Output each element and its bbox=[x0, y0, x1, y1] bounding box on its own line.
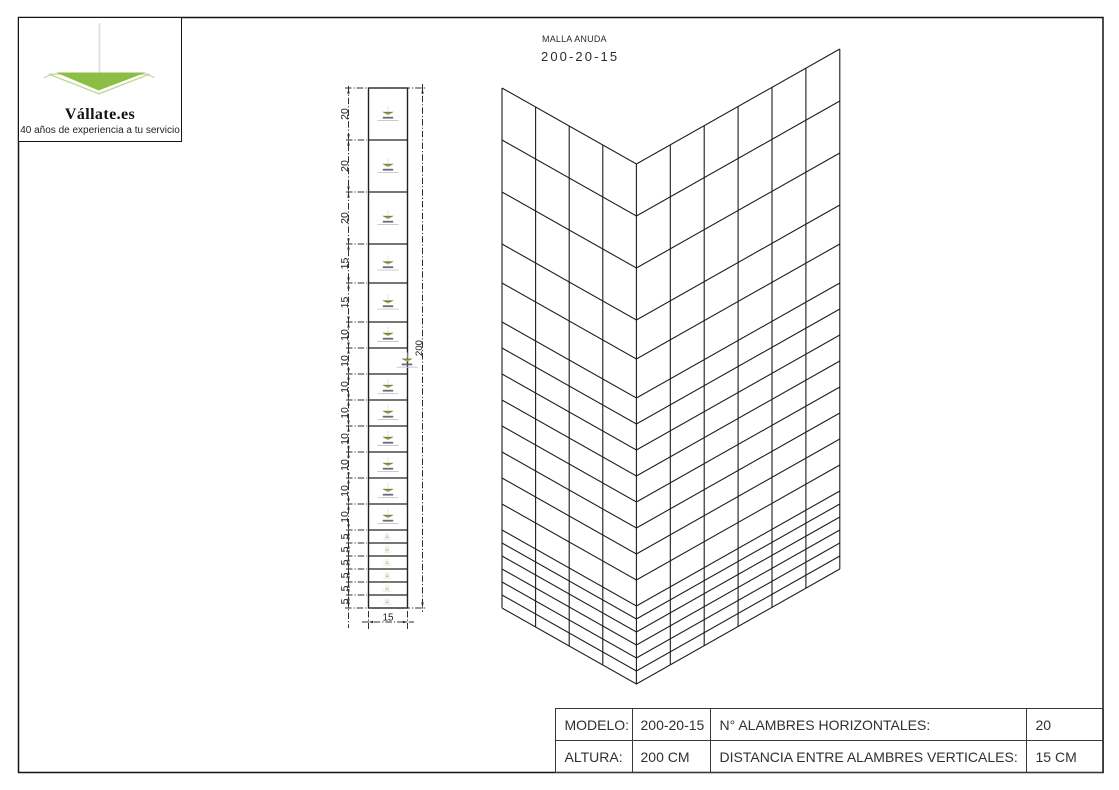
svg-text:10: 10 bbox=[339, 355, 351, 367]
svg-text:15: 15 bbox=[382, 613, 394, 624]
svg-text:10: 10 bbox=[339, 485, 351, 497]
svg-text:15: 15 bbox=[339, 297, 351, 309]
svg-text:200: 200 bbox=[414, 340, 425, 356]
svg-text:10: 10 bbox=[339, 329, 351, 341]
svg-text:10: 10 bbox=[339, 407, 351, 419]
svg-text:5: 5 bbox=[339, 533, 351, 539]
svg-text:15: 15 bbox=[339, 258, 351, 270]
svg-text:20: 20 bbox=[339, 160, 351, 172]
svg-text:20: 20 bbox=[339, 212, 351, 224]
svg-text:5: 5 bbox=[339, 585, 351, 591]
svg-text:5: 5 bbox=[339, 546, 351, 552]
svg-text:5: 5 bbox=[339, 598, 351, 604]
svg-text:10: 10 bbox=[339, 459, 351, 471]
svg-text:10: 10 bbox=[339, 433, 351, 445]
svg-text:20: 20 bbox=[339, 108, 351, 120]
svg-text:10: 10 bbox=[339, 381, 351, 393]
svg-text:5: 5 bbox=[339, 559, 351, 565]
svg-text:10: 10 bbox=[339, 511, 351, 523]
svg-text:5: 5 bbox=[339, 572, 351, 578]
